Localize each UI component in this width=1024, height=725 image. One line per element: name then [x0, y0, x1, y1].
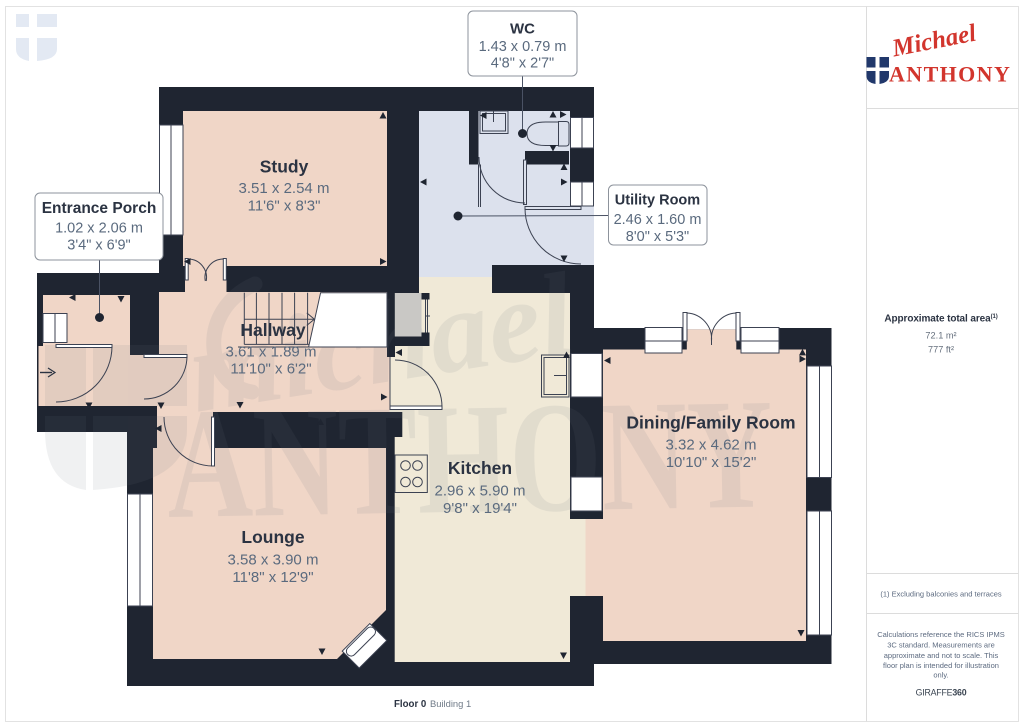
svg-text:approximate and not to scale.: approximate and not to scale. This	[884, 651, 999, 660]
svg-text:Kitchen: Kitchen	[448, 458, 512, 478]
svg-text:1.02 x 2.06 m: 1.02 x 2.06 m	[55, 221, 143, 237]
svg-text:3.32 x 4.62 m: 3.32 x 4.62 m	[666, 437, 757, 454]
svg-text:Hallway: Hallway	[240, 320, 305, 340]
svg-text:1.43 x 0.79 m: 1.43 x 0.79 m	[479, 39, 567, 55]
svg-text:floor plan is intended for ill: floor plan is intended for illustration	[883, 661, 999, 670]
svg-text:(1) Excluding balconies and te: (1) Excluding balconies and terraces	[880, 590, 1002, 599]
svg-text:11'10" x 6'2": 11'10" x 6'2"	[230, 361, 311, 378]
svg-text:Floor 0: Floor 0	[394, 699, 426, 710]
svg-text:8'0" x 5'3": 8'0" x 5'3"	[626, 229, 689, 245]
svg-text:777 ft²: 777 ft²	[928, 345, 954, 355]
svg-text:2.96 x 5.90 m: 2.96 x 5.90 m	[435, 483, 526, 500]
svg-text:4'8" x 2'7": 4'8" x 2'7"	[491, 56, 554, 72]
svg-text:9'8" x 19'4": 9'8" x 19'4"	[443, 500, 517, 517]
svg-text:only.: only.	[933, 671, 948, 680]
svg-text:Approximate total area(1): Approximate total area(1)	[884, 314, 997, 325]
svg-text:3.61 x 1.89 m: 3.61 x 1.89 m	[226, 344, 317, 361]
svg-text:Lounge: Lounge	[241, 527, 304, 547]
svg-text:3.51 x 2.54 m: 3.51 x 2.54 m	[239, 180, 330, 197]
svg-text:11'6" x 8'3": 11'6" x 8'3"	[248, 198, 321, 215]
svg-text:3C standard. Measurements are: 3C standard. Measurements are	[887, 640, 995, 649]
svg-text:72.1 m²: 72.1 m²	[925, 331, 956, 341]
svg-text:Dining/Family Room: Dining/Family Room	[626, 413, 795, 433]
svg-text:Calculations reference the RIC: Calculations reference the RICS IPMS	[877, 630, 1005, 639]
svg-text:Building 1: Building 1	[430, 698, 471, 709]
svg-text:10'10" x 15'2": 10'10" x 15'2"	[666, 454, 757, 471]
svg-text:11'8" x 12'9": 11'8" x 12'9"	[232, 569, 313, 586]
svg-text:Entrance Porch: Entrance Porch	[42, 200, 157, 217]
svg-text:Utility Room: Utility Room	[615, 193, 700, 209]
svg-text:Study: Study	[260, 157, 309, 177]
svg-text:WC: WC	[510, 21, 535, 38]
svg-text:3.58 x 3.90 m: 3.58 x 3.90 m	[228, 552, 319, 569]
svg-text:GIRAFFE360: GIRAFFE360	[916, 688, 967, 698]
svg-text:3'4" x 6'9": 3'4" x 6'9"	[67, 238, 130, 254]
svg-text:2.46 x 1.60 m: 2.46 x 1.60 m	[614, 212, 702, 228]
svg-text:ANTHONY: ANTHONY	[889, 62, 1011, 87]
svg-text:Michael: Michael	[889, 20, 978, 63]
